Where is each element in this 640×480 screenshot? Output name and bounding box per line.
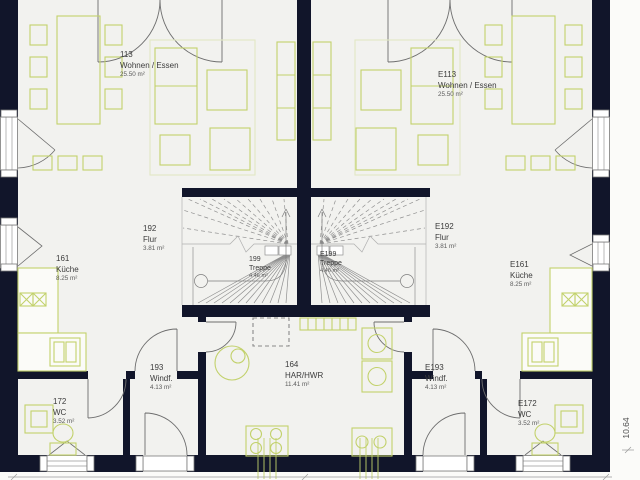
room-area: 4.13 m² (425, 384, 448, 392)
room-name: WC (518, 410, 539, 421)
room-label-e192: E192 Flur 3.81 m² (435, 222, 456, 251)
room-label-e113: E113 Wohnen / Essen 25.50 m² (438, 70, 497, 99)
room-number: 161 (56, 254, 79, 265)
room-number: 192 (143, 224, 164, 235)
room-number: 172 (53, 397, 74, 408)
room-name: Windf. (150, 374, 173, 385)
floor-plan-drawing: 10.64 (0, 0, 640, 480)
room-name: Küche (510, 271, 533, 282)
room-area: 4.46 m² (320, 268, 342, 275)
stair-bottom-wall (182, 305, 430, 317)
room-number: E113 (438, 70, 497, 81)
floor-plan-canvas: 10.64 113 Wohnen / Essen 25.50 m² E113 W… (0, 0, 640, 480)
room-name: Küche (56, 265, 79, 276)
room-area: 3.81 m² (143, 245, 164, 253)
room-label-e193: E193 Windf. 4.13 m² (425, 363, 448, 392)
room-area: 25.50 m² (120, 71, 179, 79)
room-label-161: 161 Küche 8.25 m² (56, 254, 79, 283)
room-name: Treppe (320, 259, 342, 268)
room-area: 11.41 m² (285, 381, 323, 389)
room-area: 3.81 m² (435, 243, 456, 251)
room-area: 4.13 m² (150, 384, 173, 392)
room-area: 3.52 m² (518, 420, 539, 428)
room-label-192: 192 Flur 3.81 m² (143, 224, 164, 253)
room-name: HAR/HWR (285, 371, 323, 382)
room-label-e161: E161 Küche 8.25 m² (510, 260, 533, 289)
room-number: E172 (518, 399, 539, 410)
room-area: 8.25 m² (510, 281, 533, 289)
room-number: 164 (285, 360, 323, 371)
room-name: Flur (143, 235, 164, 246)
room-label-164: 164 HAR/HWR 11.41 m² (285, 360, 323, 389)
room-label-113: 113 Wohnen / Essen 25.50 m² (120, 50, 179, 79)
room-number: E199 (320, 250, 342, 259)
room-number: 193 (150, 363, 173, 374)
room-label-172: 172 WC 3.52 m² (53, 397, 74, 426)
room-area: 4.46 m² (249, 273, 271, 280)
dimension-value-vertical: 10.64 (621, 417, 631, 439)
room-area: 25.50 m² (438, 91, 497, 99)
room-label-e199: E199 Treppe 4.46 m² (320, 250, 342, 276)
room-name: Wohnen / Essen (120, 61, 179, 72)
room-name: Flur (435, 233, 456, 244)
room-number: E193 (425, 363, 448, 374)
room-name: Windf. (425, 374, 448, 385)
room-label-e172: E172 WC 3.52 m² (518, 399, 539, 428)
room-area: 8.25 m² (56, 275, 79, 283)
room-number: E192 (435, 222, 456, 233)
room-number: 113 (120, 50, 179, 61)
party-wall (297, 0, 311, 317)
room-name: WC (53, 408, 74, 419)
stair-top-wall (182, 188, 430, 197)
room-label-199: 199 Treppe 4.46 m² (249, 255, 271, 281)
room-number: E161 (510, 260, 533, 271)
room-name: Treppe (249, 264, 271, 273)
room-label-193: 193 Windf. 4.13 m² (150, 363, 173, 392)
room-name: Wohnen / Essen (438, 81, 497, 92)
room-area: 3.52 m² (53, 418, 74, 426)
room-number: 199 (249, 255, 271, 264)
